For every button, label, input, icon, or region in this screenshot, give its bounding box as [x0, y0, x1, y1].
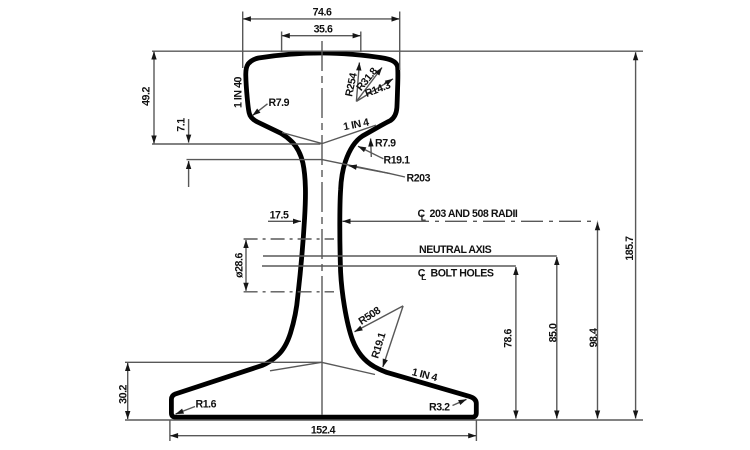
svg-text:85.0: 85.0 [548, 323, 560, 342]
svg-text:30.2: 30.2 [118, 384, 130, 403]
svg-text:R1.6: R1.6 [196, 399, 217, 411]
svg-text:7.1: 7.1 [176, 118, 188, 132]
svg-text:203 AND 508 RADII: 203 AND 508 RADII [430, 208, 518, 220]
svg-text:74.6: 74.6 [313, 7, 332, 19]
svg-text:R19.1: R19.1 [384, 155, 411, 167]
svg-text:R3.2: R3.2 [429, 402, 450, 414]
svg-text:ø28.6: ø28.6 [234, 253, 246, 278]
svg-text:152.4: 152.4 [311, 425, 336, 437]
svg-text:98.4: 98.4 [588, 328, 600, 347]
svg-text:17.5: 17.5 [270, 210, 289, 222]
svg-text:NEUTRAL AXIS: NEUTRAL AXIS [419, 244, 492, 256]
svg-text:R7.9: R7.9 [375, 138, 396, 150]
svg-text:L: L [421, 213, 426, 223]
svg-text:BOLT HOLES: BOLT HOLES [431, 267, 494, 279]
svg-text:1 IN 40: 1 IN 40 [233, 76, 245, 108]
svg-text:49.2: 49.2 [141, 87, 153, 106]
svg-text:35.6: 35.6 [314, 23, 333, 35]
svg-text:R203: R203 [407, 173, 431, 185]
svg-text:78.6: 78.6 [503, 329, 515, 348]
svg-text:R7.9: R7.9 [269, 97, 290, 109]
svg-text:L: L [421, 272, 426, 282]
svg-text:185.7: 185.7 [624, 236, 636, 261]
